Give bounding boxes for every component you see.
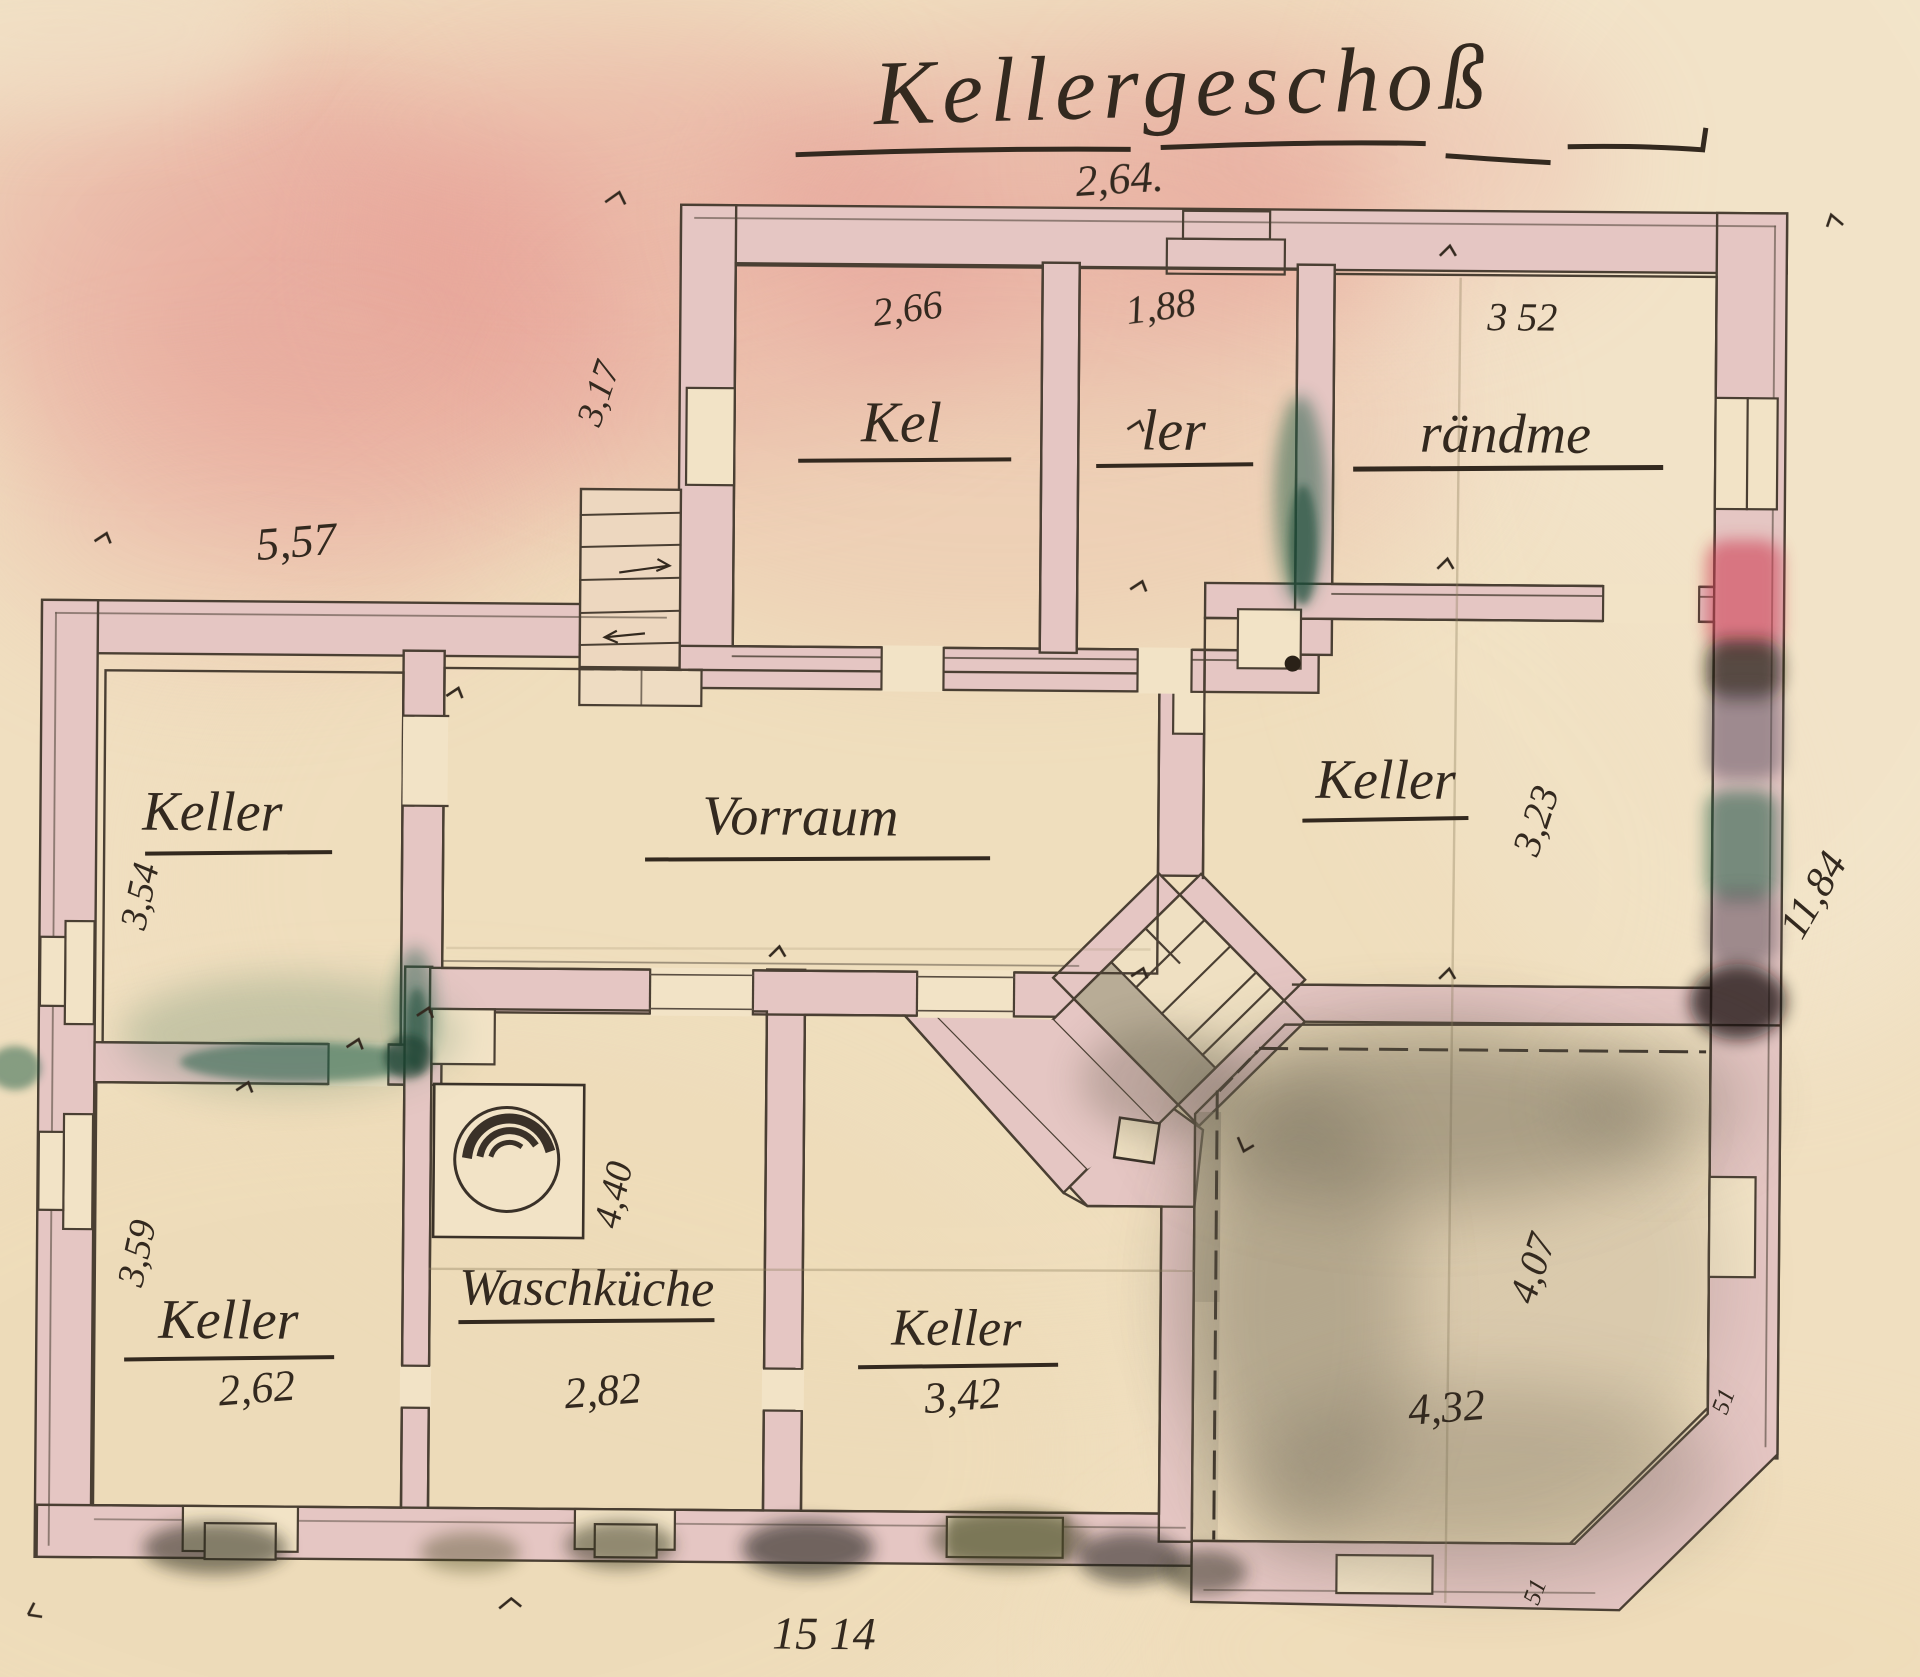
svg-text:15 14: 15 14 — [772, 1608, 876, 1660]
svg-text:Waschküche: Waschküche — [459, 1259, 715, 1318]
svg-text:Kellergeschoß: Kellergeschoß — [870, 25, 1494, 144]
svg-text:5,57: 5,57 — [254, 513, 340, 570]
svg-text:Keller: Keller — [157, 1289, 299, 1352]
svg-text:Kel: Kel — [860, 389, 942, 455]
svg-text:2,82: 2,82 — [562, 1363, 643, 1418]
svg-text:Keller: Keller — [890, 1299, 1022, 1357]
svg-text:3,42: 3,42 — [921, 1368, 1003, 1423]
svg-text:rändme: rändme — [1420, 403, 1592, 466]
svg-text:1,88: 1,88 — [1123, 279, 1198, 333]
svg-text:3 52: 3 52 — [1486, 294, 1557, 340]
svg-text:2,62: 2,62 — [216, 1361, 297, 1416]
svg-text:Vorraum: Vorraum — [702, 785, 899, 849]
svg-text:2,64.: 2,64. — [1074, 152, 1165, 206]
svg-text:2,66: 2,66 — [870, 281, 945, 335]
svg-text:4,32: 4,32 — [1406, 1380, 1487, 1435]
svg-text:Keller: Keller — [141, 781, 283, 844]
svg-text:ler: ler — [1141, 397, 1206, 463]
svg-text:Keller: Keller — [1314, 749, 1456, 812]
